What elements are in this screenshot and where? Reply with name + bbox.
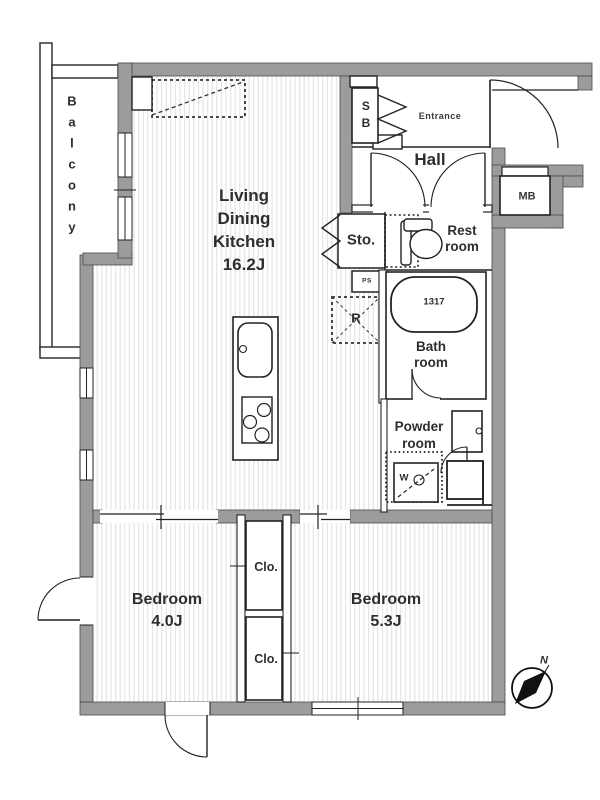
bathtub-size-label: 1317 <box>423 298 444 309</box>
left-door-arc <box>38 577 93 625</box>
bath-room-label-line2: room <box>414 355 448 371</box>
bedroom2-label: Bedroom 5.3J <box>351 589 421 633</box>
step-walls <box>447 461 492 505</box>
entrance-area <box>350 76 578 149</box>
bath-room-label: Bath room <box>414 339 448 371</box>
compass-north-label: N <box>540 655 548 668</box>
ldk-label-line1: Living <box>213 184 275 207</box>
ldk-label-line2: Dining <box>213 207 275 230</box>
floor-plan: Balcony Living Dining Kitchen 16.2J Entr… <box>0 0 600 800</box>
kitchen-island-icon <box>233 317 278 460</box>
entrance-label: Entrance <box>419 111 462 121</box>
ldk-label: Living Dining Kitchen 16.2J <box>213 184 275 276</box>
bath-room <box>379 270 486 403</box>
compass-icon <box>512 665 552 708</box>
powder-room-label-line2: room <box>395 435 444 452</box>
floor-plan-drawing <box>0 0 600 800</box>
bath-room-label-line1: Bath <box>414 339 448 355</box>
powder-room-label: Powder room <box>395 418 444 452</box>
refrigerator-space-label: R <box>351 312 360 327</box>
bedroom1-size: 4.0J <box>132 611 202 633</box>
ldk-label-line3: Kitchen <box>213 230 275 253</box>
stove-burner <box>255 428 269 442</box>
powder-room-label-line1: Powder <box>395 418 444 435</box>
bedroom2-size: 5.3J <box>351 611 421 633</box>
window-left-1 <box>80 368 93 398</box>
stove-burner <box>258 404 271 417</box>
balcony-label: Balcony <box>64 94 79 241</box>
meter-box-label: MB <box>518 191 535 204</box>
washing-machine-icon <box>386 452 442 502</box>
window-left-upper-1 <box>118 133 132 177</box>
bedroom2-name: Bedroom <box>351 589 421 611</box>
closet2-label: Clo. <box>254 652 278 666</box>
hall-label: Hall <box>414 150 445 170</box>
bedroom1-label: Bedroom 4.0J <box>132 589 202 633</box>
washbasin-icon <box>452 411 482 452</box>
bottom-door-arc <box>165 702 210 757</box>
rest-room-label-line1: Rest <box>445 223 479 239</box>
kitchen-faucet <box>240 346 247 353</box>
powder-room <box>381 399 492 512</box>
window-left-upper-2 <box>118 197 132 240</box>
shoe-box-label: SB <box>358 99 372 133</box>
ldk-size: 16.2J <box>213 253 275 276</box>
stove-burner <box>244 416 257 429</box>
toilet-icon <box>401 219 442 265</box>
wall-return-box <box>132 77 152 110</box>
pipe-space-label: PS <box>362 277 372 284</box>
washing-machine-label: W <box>400 474 409 485</box>
rest-room-label: Rest room <box>445 223 479 255</box>
closet1-label: Clo. <box>254 560 278 574</box>
shoe-box-top <box>350 76 377 87</box>
window-left-2 <box>80 450 93 480</box>
storage-label: Sto. <box>347 231 375 248</box>
rest-room-label-line2: room <box>445 239 479 255</box>
bedroom1-name: Bedroom <box>132 589 202 611</box>
closets <box>230 515 299 702</box>
